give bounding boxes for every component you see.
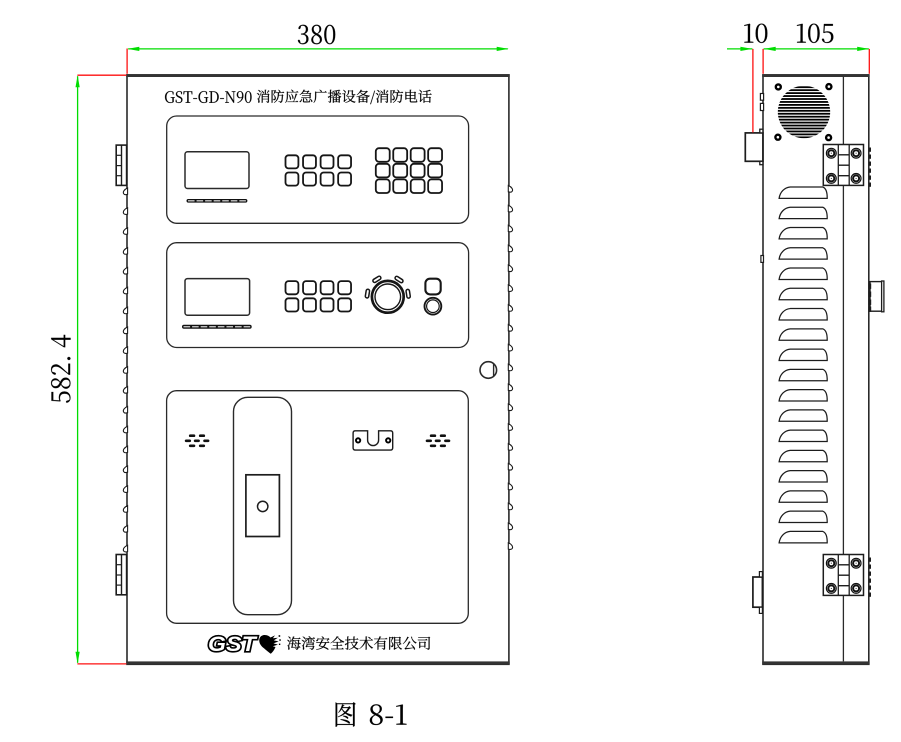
svg-text:GST: GST [208,632,258,656]
